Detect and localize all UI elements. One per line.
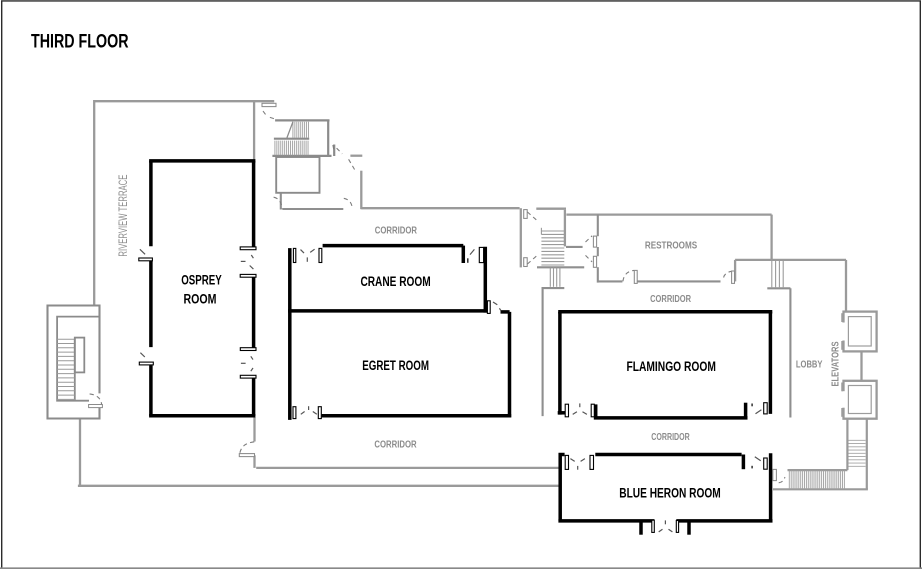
svg-text:BLUE HERON ROOM: BLUE HERON ROOM	[619, 486, 721, 501]
svg-text:CORRIDOR: CORRIDOR	[375, 226, 418, 237]
svg-text:FLAMINGO ROOM: FLAMINGO ROOM	[626, 359, 716, 374]
svg-text:ELEVATORS: ELEVATORS	[831, 341, 842, 386]
svg-text:EGRET ROOM: EGRET ROOM	[362, 358, 429, 373]
svg-text:LOBBY: LOBBY	[796, 360, 823, 371]
svg-text:CORRIDOR: CORRIDOR	[374, 439, 417, 450]
svg-text:RESTROOMS: RESTROOMS	[645, 241, 698, 252]
svg-text:ROOM: ROOM	[184, 291, 217, 306]
svg-text:CRANE ROOM: CRANE ROOM	[360, 274, 430, 289]
svg-text:OSPREY: OSPREY	[181, 272, 222, 287]
svg-text:CORRIDOR: CORRIDOR	[650, 294, 692, 305]
svg-text:CORRIDOR: CORRIDOR	[651, 432, 690, 443]
svg-text:THIRD FLOOR: THIRD FLOOR	[31, 30, 129, 52]
svg-text:RIVERVIEW TERRACE: RIVERVIEW TERRACE	[116, 175, 130, 257]
